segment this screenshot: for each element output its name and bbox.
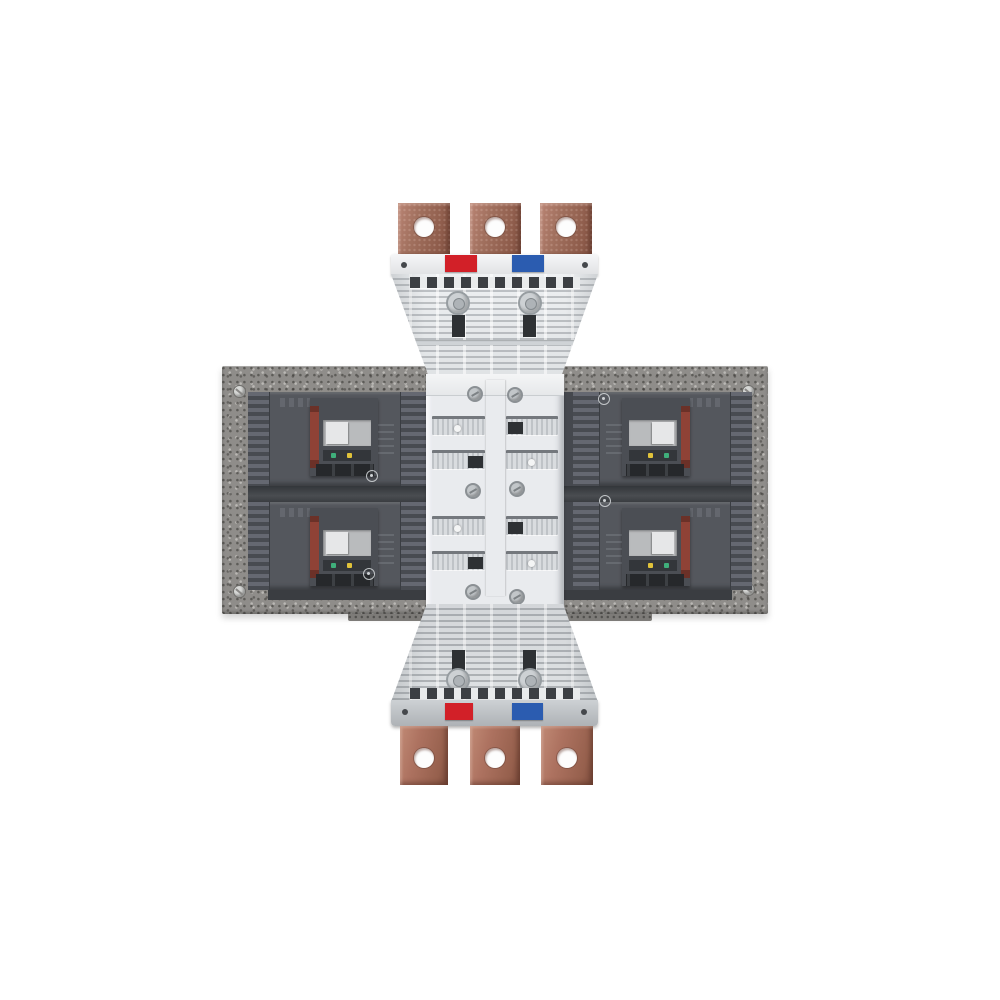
screw-boss: [467, 386, 483, 402]
keyway-slot: [468, 456, 483, 468]
phase-marker-blue: [512, 703, 543, 720]
screw-boss: [509, 481, 525, 497]
copper-busbar-bottom-2: [470, 726, 520, 785]
vent-louver: [432, 516, 485, 536]
top-adapter-strip: [391, 254, 598, 276]
brand-strip: [681, 406, 690, 468]
breaker-toggle: [652, 422, 674, 444]
breaker-heatsink-ribs: [730, 392, 752, 486]
breaker-heatsink-ribs: [730, 502, 752, 590]
bolt-hole: [556, 217, 576, 237]
copper-busbar-top-3: [540, 203, 592, 258]
indicator-row: [324, 405, 372, 415]
screw-dot: [402, 709, 408, 715]
adapter-screw: [446, 291, 470, 315]
vent-louver: [506, 516, 558, 536]
brand-strip: [310, 406, 319, 468]
bolt-hole: [414, 217, 434, 237]
screw-dot: [582, 262, 588, 268]
screw-dot: [454, 525, 461, 532]
vent-comb: [410, 277, 580, 288]
toggle-recess: [323, 420, 371, 446]
circuit-breaker-left-top: [248, 392, 446, 486]
breaker-toggle: [326, 422, 348, 444]
bolt-hole: [557, 748, 577, 768]
adapter-shading: [385, 274, 605, 374]
vent-louver: [432, 551, 485, 571]
phase-identification-stripe: [486, 380, 505, 596]
screw-boss: [509, 589, 525, 605]
breaker-heatsink-ribs: [248, 502, 270, 590]
breaker-column-left: [248, 392, 446, 600]
rotary-emblem-icon: [363, 568, 375, 580]
adapter-screw: [518, 291, 542, 315]
keyway-slot: [508, 522, 523, 534]
indicator-row: [628, 405, 676, 415]
adapter-groove: [415, 340, 575, 345]
indicator-row: [629, 450, 677, 461]
top-busbar-adapter: [385, 274, 605, 374]
toggle-recess: [629, 420, 677, 446]
vent-louver: [432, 450, 485, 470]
plate-screw-bottom-left: [233, 585, 246, 598]
bolt-hole: [485, 217, 505, 237]
breaker-faceplate: [622, 398, 690, 476]
circuit-breaker-right-top: [554, 392, 752, 486]
toggle-recess: [323, 530, 371, 556]
brand-strip: [310, 516, 319, 578]
breaker-toggle: [652, 532, 674, 554]
breaker-base-strip: [554, 590, 732, 600]
circuit-breaker-right-bottom: [554, 502, 752, 590]
toggle-recess: [629, 530, 677, 556]
vent-louver: [506, 416, 558, 436]
breaker-faceplate: [622, 508, 690, 586]
plate-screw-top-left: [233, 385, 246, 398]
vent-louver: [506, 551, 558, 571]
mounting-slot: [452, 315, 465, 337]
keyway-slot: [468, 557, 483, 569]
vent-louver: [506, 450, 558, 470]
breaker-heatsink-ribs: [400, 392, 427, 486]
copper-busbar-bottom-1: [400, 726, 448, 785]
copper-busbar-bottom-3: [541, 726, 593, 785]
vent-louver: [432, 416, 485, 436]
screw-boss: [465, 584, 481, 600]
brand-strip: [681, 516, 690, 578]
breaker-column-right: [554, 392, 752, 600]
screw-dot: [528, 459, 535, 466]
keyway-slot: [508, 422, 523, 434]
screw-dot: [454, 425, 461, 432]
breaker-toggle: [326, 532, 348, 554]
screw-boss: [465, 483, 481, 499]
circuit-breaker-left-bottom: [248, 502, 446, 590]
terminal-cover: [626, 464, 684, 476]
terminal-cover: [626, 574, 684, 586]
bolt-hole: [414, 748, 434, 768]
phase-marker-red: [445, 255, 477, 272]
bottom-adapter-strip: [391, 700, 598, 726]
screw-dot: [528, 560, 535, 567]
breaker-heatsink-ribs: [573, 392, 600, 486]
indicator-row: [323, 450, 371, 461]
breaker-faceplate: [310, 398, 378, 476]
screw-dot: [581, 709, 587, 715]
phase-marker-blue: [512, 255, 544, 272]
breaker-gap-band: [554, 486, 752, 502]
screw-boss: [507, 387, 523, 403]
breaker-heatsink-ribs: [400, 502, 427, 590]
phase-marker-red: [445, 703, 473, 720]
screw-dot: [401, 262, 407, 268]
breaker-base-strip: [268, 590, 446, 600]
product-photo-busbar-assembly: [0, 0, 1000, 1000]
indicator-row: [324, 515, 372, 525]
breaker-heatsink-ribs: [573, 502, 600, 590]
indicator-row: [629, 560, 677, 571]
center-busbar-module: [426, 374, 564, 618]
breaker-heatsink-ribs: [248, 392, 270, 486]
vent-comb: [410, 688, 580, 699]
bolt-hole: [485, 748, 505, 768]
rotary-emblem-icon: [366, 470, 378, 482]
mounting-slot: [523, 315, 536, 337]
indicator-row: [628, 515, 676, 525]
copper-busbar-top-1: [398, 203, 450, 258]
rotary-emblem-icon: [598, 393, 610, 405]
rotary-emblem-icon: [599, 495, 611, 507]
copper-busbar-top-2: [470, 203, 521, 258]
breaker-gap-band: [248, 486, 446, 502]
